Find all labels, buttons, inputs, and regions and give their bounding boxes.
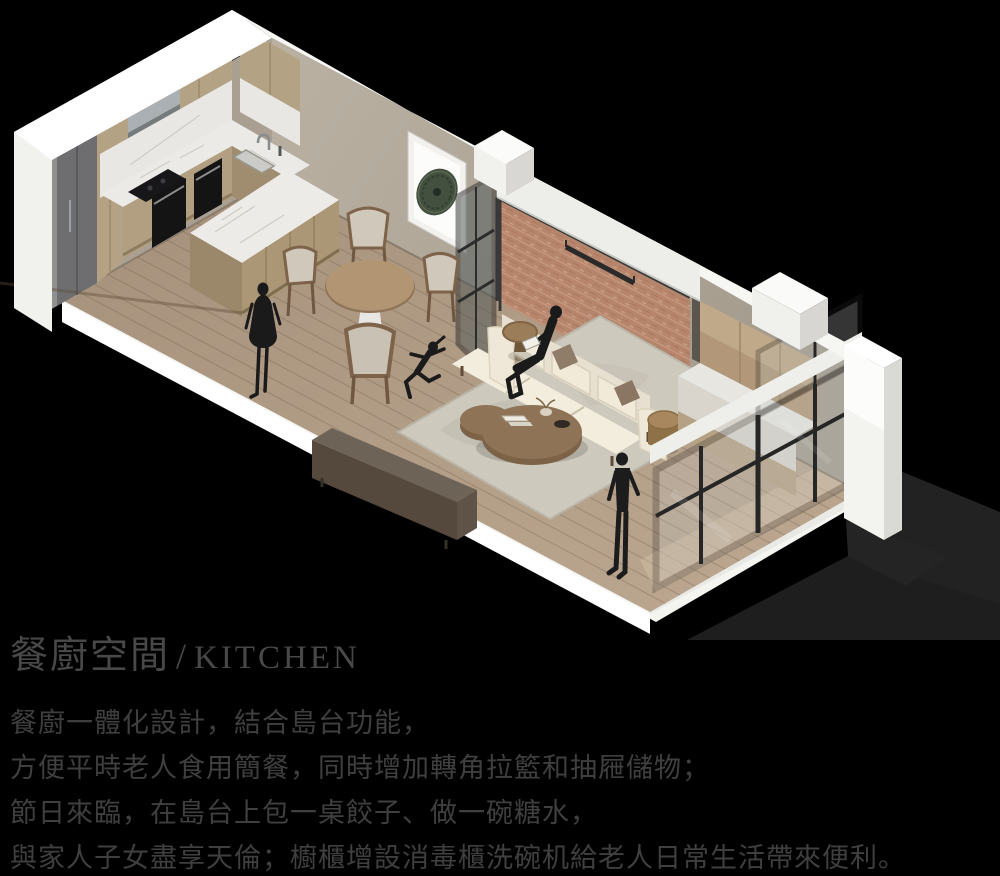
render-image: [0, 0, 1000, 640]
title-separator: /: [170, 636, 194, 676]
description-line-3: 節日來臨，在島台上包一桌餃子、做一碗糖水，: [10, 791, 598, 830]
title-chinese: 餐廚空間: [10, 635, 170, 677]
section-title: 餐廚空間/KITCHEN: [10, 624, 360, 679]
presentation-page: 餐廚空間/KITCHEN 餐廚一體化設計，結合島台功能， 方便平時老人食用簡餐，…: [0, 0, 1000, 876]
description-line-2: 方便平時老人食用簡餐，同時增加轉角拉籃和抽屜儲物；: [10, 746, 710, 785]
description-line-4: 與家人子女盡享天倫；櫥櫃增設消毒櫃洗碗机給老人日常生活帶來便利。: [10, 836, 906, 875]
corner-pillar: [844, 336, 902, 540]
title-english: KITCHEN: [194, 640, 360, 676]
description-line-1: 餐廚一體化設計，結合島台功能，: [10, 701, 430, 740]
